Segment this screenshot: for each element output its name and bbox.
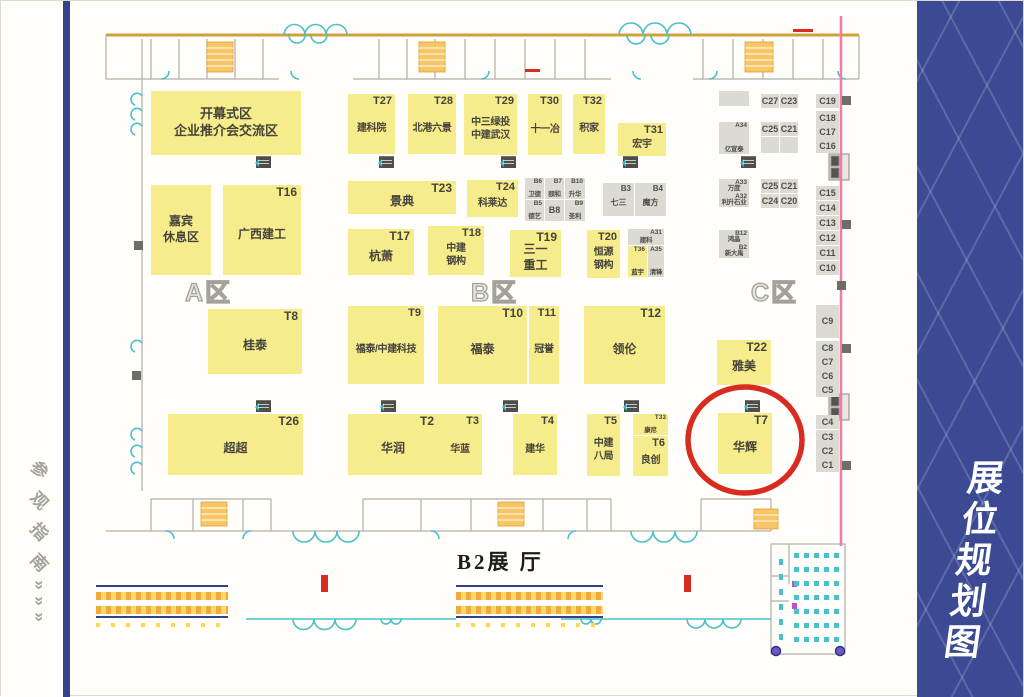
booth-id: T8 <box>284 310 298 324</box>
booth-T6: T6良创 <box>633 436 668 476</box>
booth-id: T18 <box>462 227 481 240</box>
booth-id: T22 <box>746 341 767 355</box>
booth-id: T12 <box>640 307 661 321</box>
booth-id: C24 <box>762 196 779 206</box>
door-icon <box>256 156 271 168</box>
booth-A32: A32利升石业 <box>719 193 749 207</box>
booth-id: C10 <box>819 263 836 273</box>
booth-T19: T19三一重工 <box>510 230 561 277</box>
booth-C21-b: C21 <box>780 179 798 193</box>
booth-C4: C4 <box>816 415 839 429</box>
meeting-tables <box>779 553 839 642</box>
booth-id: C5 <box>822 385 834 395</box>
wall-fixture <box>842 461 851 470</box>
escalator-marker <box>684 575 691 592</box>
booth-id: T20 <box>598 231 617 244</box>
booth-T8: T8桂泰 <box>208 309 302 374</box>
booth-id: T30 <box>540 95 559 108</box>
booth-id: T32 <box>583 95 602 108</box>
booth-id: C3 <box>822 432 834 442</box>
booth-C25-b: C25 <box>761 179 779 193</box>
walkway <box>456 585 603 618</box>
booth-C18: C18 <box>816 111 839 125</box>
booth-id: T24 <box>496 181 515 194</box>
zone-label-C: C区 <box>751 273 798 309</box>
wall-fixture <box>842 344 851 353</box>
booth-B9: B9圣利 <box>565 200 585 221</box>
booth-T24: T24科莱达 <box>467 180 518 217</box>
booth-id: T27 <box>373 95 392 108</box>
booth-id: C1 <box>822 460 834 470</box>
door-icon <box>379 156 394 168</box>
booth-block-1 <box>719 91 749 106</box>
booth-C7: C7 <box>816 355 839 369</box>
booth-id: C12 <box>819 233 836 243</box>
zone-label-A: A区 <box>185 273 232 309</box>
booth-name: 升华 <box>565 191 585 198</box>
booth-C27: C27 <box>761 94 779 108</box>
booth-B12: B12鸿晶 <box>719 230 749 244</box>
booth-T10: T10福泰 <box>438 306 527 384</box>
wall-fixture <box>842 96 851 105</box>
booth-C24: C24 <box>761 194 779 208</box>
booth-T4: T4建华 <box>513 414 557 475</box>
door-icon <box>381 400 396 412</box>
booth-B8: B8 <box>545 200 564 221</box>
booth-id: T9 <box>408 307 421 320</box>
door-icon <box>256 400 271 412</box>
booth-C19: C19 <box>816 94 839 108</box>
floorplan-map: B2展 厅 开幕式区企业推介会交流区嘉宾休息区T16广西建工T27建科院T28北… <box>1 1 1023 695</box>
booth-id: C8 <box>822 343 834 353</box>
booth-id: C27 <box>762 96 779 106</box>
booth-id: C21 <box>781 124 798 134</box>
booth-id: C20 <box>781 196 798 206</box>
booth-id: T33 <box>655 414 666 422</box>
wall-fixture <box>842 220 851 229</box>
booth-id: C23 <box>781 96 798 106</box>
booth-T18: T18中建钢构 <box>428 226 484 275</box>
booth-id: C25 <box>762 181 779 191</box>
booth-id: B9 <box>575 200 583 208</box>
booth-C21: C21 <box>780 122 798 136</box>
booth-B4: B4魔方 <box>635 183 666 216</box>
booth-name: 颐和 <box>545 191 564 198</box>
booth-C2: C2 <box>816 444 839 458</box>
booth-id: C15 <box>819 188 836 198</box>
booth-A35: A35清锋 <box>648 246 664 277</box>
booth-id: T29 <box>495 95 514 108</box>
booth-C9: C9 <box>816 305 839 338</box>
booth-id: T7 <box>754 414 768 428</box>
booth-T5: T5中建八局 <box>587 414 620 476</box>
title-rail: 展位规划图 <box>917 1 1023 697</box>
booth-id: C13 <box>819 218 836 228</box>
booth-id: C4 <box>822 417 834 427</box>
booth-name: 卫德 <box>525 191 544 198</box>
booth-A31: A31建科 <box>628 229 664 245</box>
booth-id: B7 <box>554 178 562 186</box>
booth-C20: C20 <box>780 194 798 208</box>
booth-id: T23 <box>431 182 452 196</box>
booth-id: T17 <box>389 230 410 244</box>
booth-id: C7 <box>822 357 834 367</box>
booth-name: 鸿晶 <box>719 236 749 243</box>
booth-T26: T26超超 <box>168 414 303 475</box>
booth-C5: C5 <box>816 383 839 397</box>
page-title: 展位规划图 <box>931 459 1012 664</box>
booth-A33: A33万度 <box>719 179 749 193</box>
wall-fixture <box>132 371 141 380</box>
page: 参观指南»»» <box>1 1 1023 695</box>
booth-guest-lounge: 嘉宾休息区 <box>151 185 211 275</box>
booth-T9: T9福泰/中建科技 <box>348 306 424 384</box>
booth-T30: T30十一冶 <box>528 94 562 155</box>
booth-block-2 <box>761 137 779 153</box>
door-icon <box>745 400 760 412</box>
booth-id: T16 <box>276 186 297 200</box>
booth-T23: T23景典 <box>348 181 456 214</box>
booth-id: C25 <box>762 124 779 134</box>
escalator-marker <box>321 575 328 592</box>
booth-name: 清锋 <box>648 269 664 276</box>
booth-id: T19 <box>536 231 557 245</box>
booth-C1: C1 <box>816 458 839 472</box>
booth-T32: T32积家 <box>573 94 605 154</box>
booth-C16: C16 <box>816 139 839 153</box>
booth-name: 蓝宇 <box>628 269 647 276</box>
booth-T12: T12领伦 <box>584 306 665 384</box>
booth-name: 康尼 <box>633 427 668 434</box>
walkway <box>96 585 228 618</box>
booth-B5: B5德艺 <box>525 200 544 221</box>
booth-id: B3 <box>621 184 631 193</box>
booth-id: C6 <box>822 371 834 381</box>
booth-id: C2 <box>822 446 834 456</box>
booth-name: 利升石业 <box>719 199 749 206</box>
zone-label-B: B区 <box>471 273 518 309</box>
booth-id: T2 <box>420 415 434 429</box>
booth-C12: C12 <box>816 231 839 245</box>
booth-name: 开幕式区企业推介会交流区 <box>151 91 301 155</box>
booth-name: 德艺 <box>525 213 544 220</box>
walkway-dots <box>456 623 603 627</box>
booth-id: C14 <box>819 203 836 213</box>
booth-T2: T2华润 <box>348 414 438 475</box>
booth-T36: T36蓝宇 <box>628 246 647 277</box>
booth-T27: T27建科院 <box>348 94 395 154</box>
booth-id: T36 <box>634 246 645 254</box>
booth-name: 建科 <box>628 237 664 244</box>
booth-id: B5 <box>534 200 542 208</box>
booth-block-3 <box>780 137 798 153</box>
booth-T31: T31宏宇 <box>618 123 666 156</box>
booth-id: T31 <box>644 124 663 137</box>
booth-C17: C17 <box>816 125 839 139</box>
wall-fixture <box>134 241 143 250</box>
booth-id: C21 <box>781 181 798 191</box>
door-icon <box>503 400 518 412</box>
booth-C23: C23 <box>780 94 798 108</box>
booth-id: A35 <box>650 246 662 254</box>
booth-id: T3 <box>466 415 479 428</box>
booth-C14: C14 <box>816 201 839 215</box>
booth-id: T28 <box>434 95 453 108</box>
booth-id: C11 <box>819 248 835 258</box>
walkway-dots <box>96 623 228 627</box>
booth-C13: C13 <box>816 216 839 230</box>
booth-C15: C15 <box>816 186 839 200</box>
door-icon <box>624 400 639 412</box>
booth-C11: C11 <box>816 246 839 260</box>
booth-id: C16 <box>819 141 836 151</box>
booth-B6: B6卫德 <box>525 178 544 199</box>
wall-fixture <box>837 281 846 290</box>
booth-id: B4 <box>653 184 663 193</box>
booth-id: T10 <box>502 307 523 321</box>
booth-id: B10 <box>571 178 583 186</box>
booth-opening-area: 开幕式区企业推介会交流区 <box>151 91 301 155</box>
booth-A34: A34亿宣泰 <box>719 122 749 154</box>
booth-T16: T16广西建工 <box>223 185 301 275</box>
booth-T17: T17杭萧 <box>348 229 414 275</box>
booth-name: 圣利 <box>565 213 585 220</box>
booth-T11: T11冠誉 <box>529 306 559 384</box>
booth-id: A34 <box>735 122 747 130</box>
door-icon <box>501 156 516 168</box>
booth-B7: B7颐和 <box>545 178 564 199</box>
booth-id: C18 <box>819 113 836 123</box>
booth-id: T4 <box>541 415 554 428</box>
booth-id: C17 <box>819 127 836 137</box>
booth-C10: C10 <box>816 261 839 275</box>
booth-T20: T20恒源钢构 <box>587 230 620 278</box>
booth-C8: C8 <box>816 341 839 355</box>
booth-id: T11 <box>538 307 556 320</box>
door-icon <box>741 156 756 168</box>
booth-B10: B10升华 <box>565 178 585 199</box>
booth-id: C9 <box>822 316 834 326</box>
booth-B3: B3七三 <box>603 183 634 216</box>
door-icon <box>623 156 638 168</box>
booth-name: 万度 <box>719 185 749 192</box>
booth-T3: T3华蓝 <box>438 414 482 475</box>
booth-id: T26 <box>278 415 299 429</box>
booth-name: 嘉宾休息区 <box>151 185 211 275</box>
booth-name: 新大禹 <box>719 250 749 257</box>
booth-id: T5 <box>604 415 617 428</box>
hall-label: B2展 厅 <box>457 546 544 576</box>
booth-T22: T22雅美 <box>717 340 771 385</box>
booth-T29: T29中三绿投中建武汉 <box>464 94 517 155</box>
booth-id: C19 <box>819 96 836 106</box>
booth-id: A31 <box>650 229 662 237</box>
booth-B2: B2新大禹 <box>719 244 749 258</box>
booth-T28: T28北港六景 <box>408 94 456 154</box>
booth-id: B6 <box>534 178 542 186</box>
booth-C3: C3 <box>816 430 839 444</box>
booth-T33: T33康尼 <box>633 414 668 435</box>
booth-C6: C6 <box>816 369 839 383</box>
booth-C25: C25 <box>761 122 779 136</box>
booth-T7: T7华辉 <box>718 413 772 474</box>
booth-name: 亿宣泰 <box>719 146 749 153</box>
booth-id: B8 <box>549 205 561 215</box>
booth-id: T6 <box>652 437 665 450</box>
